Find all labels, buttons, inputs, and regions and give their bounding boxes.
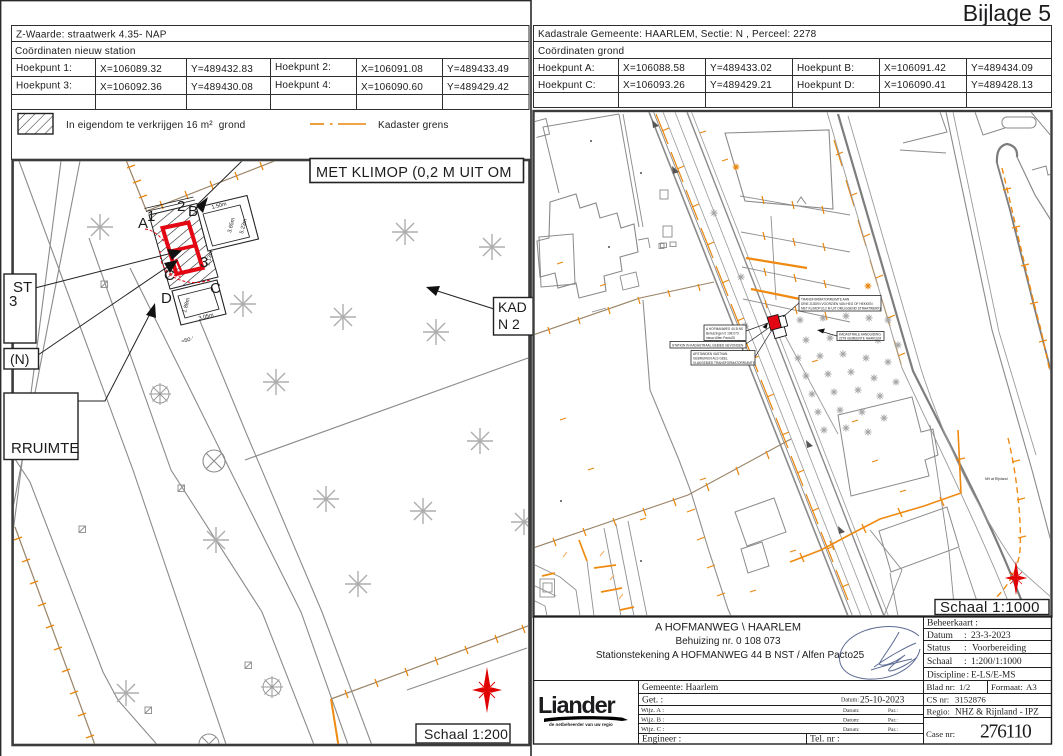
svg-text:X=106089.32: X=106089.32 [100,64,162,75]
svg-text:Wijz. C :: Wijz. C : [641,726,665,733]
svg-text:Z-Waarde: straatwerk 4.35- NAP: Z-Waarde: straatwerk 4.35- NAP [16,30,167,41]
svg-text:Datum:: Datum: [843,708,860,714]
svg-text:de netbeheerder van uw regio: de netbeheerder van uw regio [549,722,613,727]
svg-text:CS nr:: CS nr: [927,694,950,704]
svg-text:Discipline: Discipline [927,670,965,680]
svg-text:1/2: 1/2 [959,682,970,692]
svg-text:23-3-2023: 23-3-2023 [971,631,1011,641]
svg-text:DRIE ZIJDEN VOORZIEN VAN HEG O: DRIE ZIJDEN VOORZIEN VAN HEG OF HEKKEN [801,302,873,306]
svg-text:X=106093.26: X=106093.26 [623,80,685,91]
svg-text:D: D [161,290,172,307]
svg-text:Hoekpunt 4:: Hoekpunt 4: [275,80,331,91]
svg-text:Par.:: Par.: [888,727,898,733]
svg-text::: : [964,644,967,654]
svg-text:X=106088.58: X=106088.58 [623,63,685,74]
svg-text:Schaal: Schaal [927,657,953,667]
svg-text:X=106090.60: X=106090.60 [361,82,423,93]
svg-text:3152876: 3152876 [955,694,986,704]
svg-text:C: C [210,280,221,297]
svg-text:Case nr:: Case nr: [926,729,955,739]
svg-text:MET KLIMOP (0,2 M UIT OM: MET KLIMOP (0,2 M UIT OM [316,165,512,181]
svg-text:Engineer :: Engineer : [642,735,681,745]
svg-text:Kadastrale Gemeente: HAARLEM,: Kadastrale Gemeente: HAARLEM, Sectie: N … [538,29,817,40]
svg-text:Beheerkaart :: Beheerkaart : [927,619,978,629]
svg-text:Hoekpunt C:: Hoekpunt C: [538,80,596,91]
svg-text:2: 2 [177,198,185,215]
svg-text:Schaal 1:200: Schaal 1:200 [424,726,508,742]
svg-text:Hoekpunt D:: Hoekpunt D: [797,80,855,91]
svg-text:Datum:: Datum: [843,718,860,724]
svg-text:Wijz. A :: Wijz. A : [641,707,664,714]
svg-text:Datum:: Datum: [841,698,859,704]
svg-text:Stationstekening A HOFMANWEG 4: Stationstekening A HOFMANWEG 44 B NST / … [596,650,865,661]
svg-text:Coördinaten grond: Coördinaten grond [538,46,624,57]
svg-text:2278 GEMEENTE HAARLEM: 2278 GEMEENTE HAARLEM [839,337,882,341]
svg-text:A3: A3 [1026,682,1037,692]
svg-text:Tel. nr :: Tel. nr : [810,735,840,745]
svg-text:Hoekpunt A:: Hoekpunt A: [538,63,595,74]
svg-text:Get. :: Get. : [642,696,663,706]
svg-text:Y=489433.49: Y=489433.49 [447,64,509,75]
svg-text:Coördinaten nieuw station: Coördinaten nieuw station [15,46,136,57]
svg-text:In eigendom te verkrijgen 16 m: In eigendom te verkrijgen 16 m² grond [66,120,245,131]
svg-text:X=106091.08: X=106091.08 [361,64,423,75]
svg-text:Bijlage 5: Bijlage 5 [963,0,1051,26]
svg-text:Y=489428.13: Y=489428.13 [971,80,1033,91]
svg-text:1: 1 [147,208,155,225]
svg-text:Par.:: Par.: [888,708,898,714]
svg-text:Y=489434.09: Y=489434.09 [971,63,1033,74]
svg-text:Datum:: Datum: [843,727,860,733]
svg-text:X=106090.41: X=106090.41 [884,80,946,91]
svg-text:NHZ & Rijnland - IPZ: NHZ & Rijnland - IPZ [955,707,1039,717]
svg-text:Par.:: Par.: [888,718,898,724]
svg-text:E-LS/E-MS: E-LS/E-MS [971,670,1015,680]
svg-text:Behuizingen 0 108 073: Behuizingen 0 108 073 [706,331,739,335]
svg-text:Schaal 1:1000: Schaal 1:1000 [940,599,1040,616]
svg-text:Wijz. B :: Wijz. B : [641,717,665,724]
svg-text:Y=489433.02: Y=489433.02 [710,63,772,74]
svg-text:(N): (N) [10,351,29,367]
svg-text::: : [964,657,967,667]
svg-text:STATION IN KADASTRAAL GEBIED G: STATION IN KADASTRAAL GEBIED GEVONDEN [672,343,744,347]
svg-text:A HOFMANWEG 44 B NS: A HOFMANWEG 44 B NS [706,327,743,331]
svg-text:X=106092.36: X=106092.36 [100,82,162,93]
svg-text:N 2: N 2 [498,316,520,332]
svg-text:3: 3 [9,293,17,310]
svg-text:X=106091.42: X=106091.42 [884,63,946,74]
svg-text:B: B [188,203,198,220]
svg-text:TRANSFORMATORRUIMTE AAN: TRANSFORMATORRUIMTE AAN [801,297,850,301]
svg-text:Y=489430.08: Y=489430.08 [191,82,253,93]
svg-text:VLAKGEBIED TRANSFORMATORRUIMTE: VLAKGEBIED TRANSFORMATORRUIMTE [693,361,755,365]
svg-text:Datum: Datum [927,631,953,641]
svg-text:25-10-2023: 25-10-2023 [860,696,905,706]
svg-text:A HOFMANWEG \ HAARLEM: A HOFMANWEG \ HAARLEM [655,622,801,634]
svg-text:Kadaster grens: Kadaster grens [378,120,449,131]
svg-text:KAD: KAD [498,299,527,315]
svg-text:Status: Status [927,644,951,654]
svg-text:Formaat:: Formaat: [991,682,1023,692]
svg-text:RRUIMTE: RRUIMTE [11,440,79,457]
svg-text:Liander: Liander [538,692,616,718]
svg-text:GEBRUIKEN ALS GEEL: GEBRUIKEN ALS GEEL [693,357,728,361]
svg-text::: : [964,631,967,641]
svg-text:Hoekpunt 1:: Hoekpunt 1: [16,63,72,74]
svg-text:Hoekpunt 3:: Hoekpunt 3: [16,81,72,92]
svg-text:Blad nr:: Blad nr: [927,682,956,692]
svg-text:Hoekpunt 2:: Hoekpunt 2: [275,62,331,73]
svg-text:Voorbereiding: Voorbereiding [972,644,1026,654]
svg-text:Y=489429.42: Y=489429.42 [447,82,509,93]
svg-text:nieuw Alfen Pacto25: nieuw Alfen Pacto25 [706,336,735,340]
svg-text:Gemeente: Haarlem: Gemeente: Haarlem [642,683,719,693]
svg-text:NH at Rijnland: NH at Rijnland [985,477,1008,481]
svg-text:MET KLIMOP (0,2 M UIT OMLIGGEN: MET KLIMOP (0,2 M UIT OMLIGGEND STRAATWE… [801,306,881,310]
svg-text:1:200/1:1000: 1:200/1:1000 [971,657,1022,667]
svg-text:Hoekpunt B:: Hoekpunt B: [797,63,854,74]
svg-text:Y=489432.83: Y=489432.83 [191,64,253,75]
svg-text:276110: 276110 [980,722,1031,743]
svg-text:Behuizing nr. 0 108 073: Behuizing nr. 0 108 073 [675,636,781,647]
svg-text::: : [967,670,970,680]
svg-text:Y=489429.21: Y=489429.21 [710,80,772,91]
svg-text:AFSTANDEN VASTVAN: AFSTANDEN VASTVAN [693,352,728,356]
svg-text:Regio:: Regio: [927,707,950,717]
